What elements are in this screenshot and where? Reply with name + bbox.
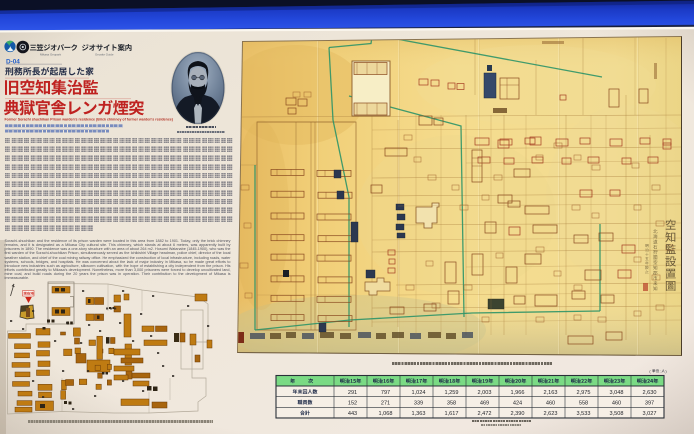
svg-text:271: 271: [381, 400, 390, 406]
svg-text:339: 339: [414, 400, 423, 406]
svg-text:2,975: 2,975: [577, 390, 591, 396]
svg-text:469: 469: [480, 400, 489, 406]
svg-text:2,630: 2,630: [643, 390, 657, 396]
svg-text:291: 291: [348, 390, 357, 396]
svg-text:3,533: 3,533: [577, 411, 591, 417]
svg-text:358: 358: [447, 400, 456, 406]
svg-text:2,163: 2,163: [544, 390, 558, 396]
svg-text:1,068: 1,068: [379, 411, 393, 417]
svg-text:Former Sorachi shuchikan Priso: Former Sorachi shuchikan Prison warden's…: [5, 118, 173, 122]
svg-text:3,048: 3,048: [610, 390, 624, 396]
svg-text:1,259: 1,259: [445, 390, 459, 396]
svg-text:797: 797: [381, 390, 390, 396]
svg-text:2,003: 2,003: [478, 390, 492, 396]
svg-text:424: 424: [513, 400, 522, 406]
svg-text:2,623: 2,623: [544, 411, 558, 417]
svg-text:1,024: 1,024: [412, 390, 426, 396]
svg-text:(: (: [649, 370, 651, 374]
svg-text:397: 397: [645, 400, 654, 406]
svg-text:1,363: 1,363: [412, 411, 426, 417]
svg-text:152: 152: [348, 400, 357, 406]
svg-text::: :: [660, 370, 661, 374]
svg-text:460: 460: [546, 400, 555, 406]
svg-text:2,472: 2,472: [478, 411, 492, 417]
svg-text:2,390: 2,390: [511, 411, 525, 417]
svg-text:3,508: 3,508: [610, 411, 624, 417]
svg-text:1,617: 1,617: [445, 411, 459, 417]
svg-text:460: 460: [612, 400, 621, 406]
svg-text:558: 558: [579, 400, 588, 406]
svg-text:): ): [665, 370, 667, 374]
svg-text:1,966: 1,966: [511, 390, 525, 396]
svg-text:3,027: 3,027: [643, 411, 657, 417]
svg-text:443: 443: [348, 411, 357, 417]
